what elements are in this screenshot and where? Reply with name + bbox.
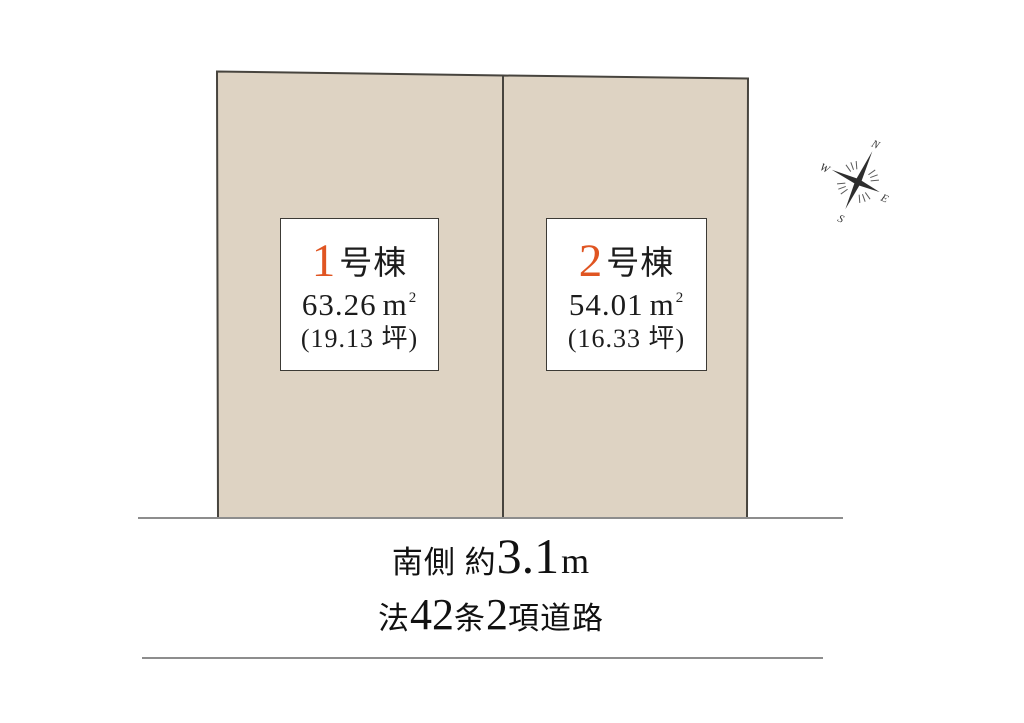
lot2-area-unit-exponent: 2	[676, 290, 685, 306]
lot1-title: 1号棟	[312, 237, 408, 286]
lot2-suffix: 号棟	[606, 246, 674, 282]
road-south-width-text: 南側 約3.1m	[140, 527, 842, 585]
compass-label-south: S	[836, 213, 847, 226]
lot1-number: 1	[312, 235, 337, 287]
road-law-text: 法42条2項道路	[140, 589, 842, 640]
road-width-unit: m	[561, 541, 590, 581]
lot2-tsubo: (16.33 坪)	[568, 325, 685, 352]
compass-label-west: W	[818, 161, 832, 176]
lot2-area-value: 54.01	[569, 287, 644, 322]
compass-label-north: N	[869, 137, 882, 152]
law-prefix: 法	[378, 601, 410, 636]
lot1-info-box: 1号棟 63.26m2 (19.13 坪)	[280, 218, 439, 371]
lot2-number: 2	[579, 235, 604, 287]
lot1-area: 63.26m2	[302, 289, 417, 322]
law-article-number: 42	[410, 590, 454, 639]
lot2-info-box: 2号棟 54.01m2 (16.33 坪)	[546, 218, 707, 371]
road-width-value: 3.1	[497, 528, 560, 584]
lot2-area: 54.01m2	[569, 289, 684, 322]
law-jou: 条	[454, 601, 486, 636]
lot1-area-unit-exponent: 2	[409, 290, 418, 306]
lot1-area-unit: m	[383, 287, 408, 322]
road-south-label: 南側 約	[392, 545, 497, 580]
lot2-title: 2号棟	[579, 237, 675, 286]
law-item-number: 2	[486, 590, 508, 639]
law-suffix: 項道路	[508, 601, 604, 636]
road-annotation: 南側 約3.1m 法42条2項道路	[140, 527, 842, 640]
lot1-tsubo: (19.13 坪)	[301, 325, 418, 352]
compass-rose-icon: N E S W	[801, 122, 909, 239]
lot2-area-unit: m	[650, 287, 675, 322]
site-plan-diagram: N E S W 1号棟 63.26m2 (19.13 坪) 2号棟 54.01m…	[0, 0, 1024, 723]
compass-label-east: E	[878, 191, 890, 205]
lot1-area-value: 63.26	[302, 287, 377, 322]
lot1-suffix: 号棟	[339, 246, 407, 282]
